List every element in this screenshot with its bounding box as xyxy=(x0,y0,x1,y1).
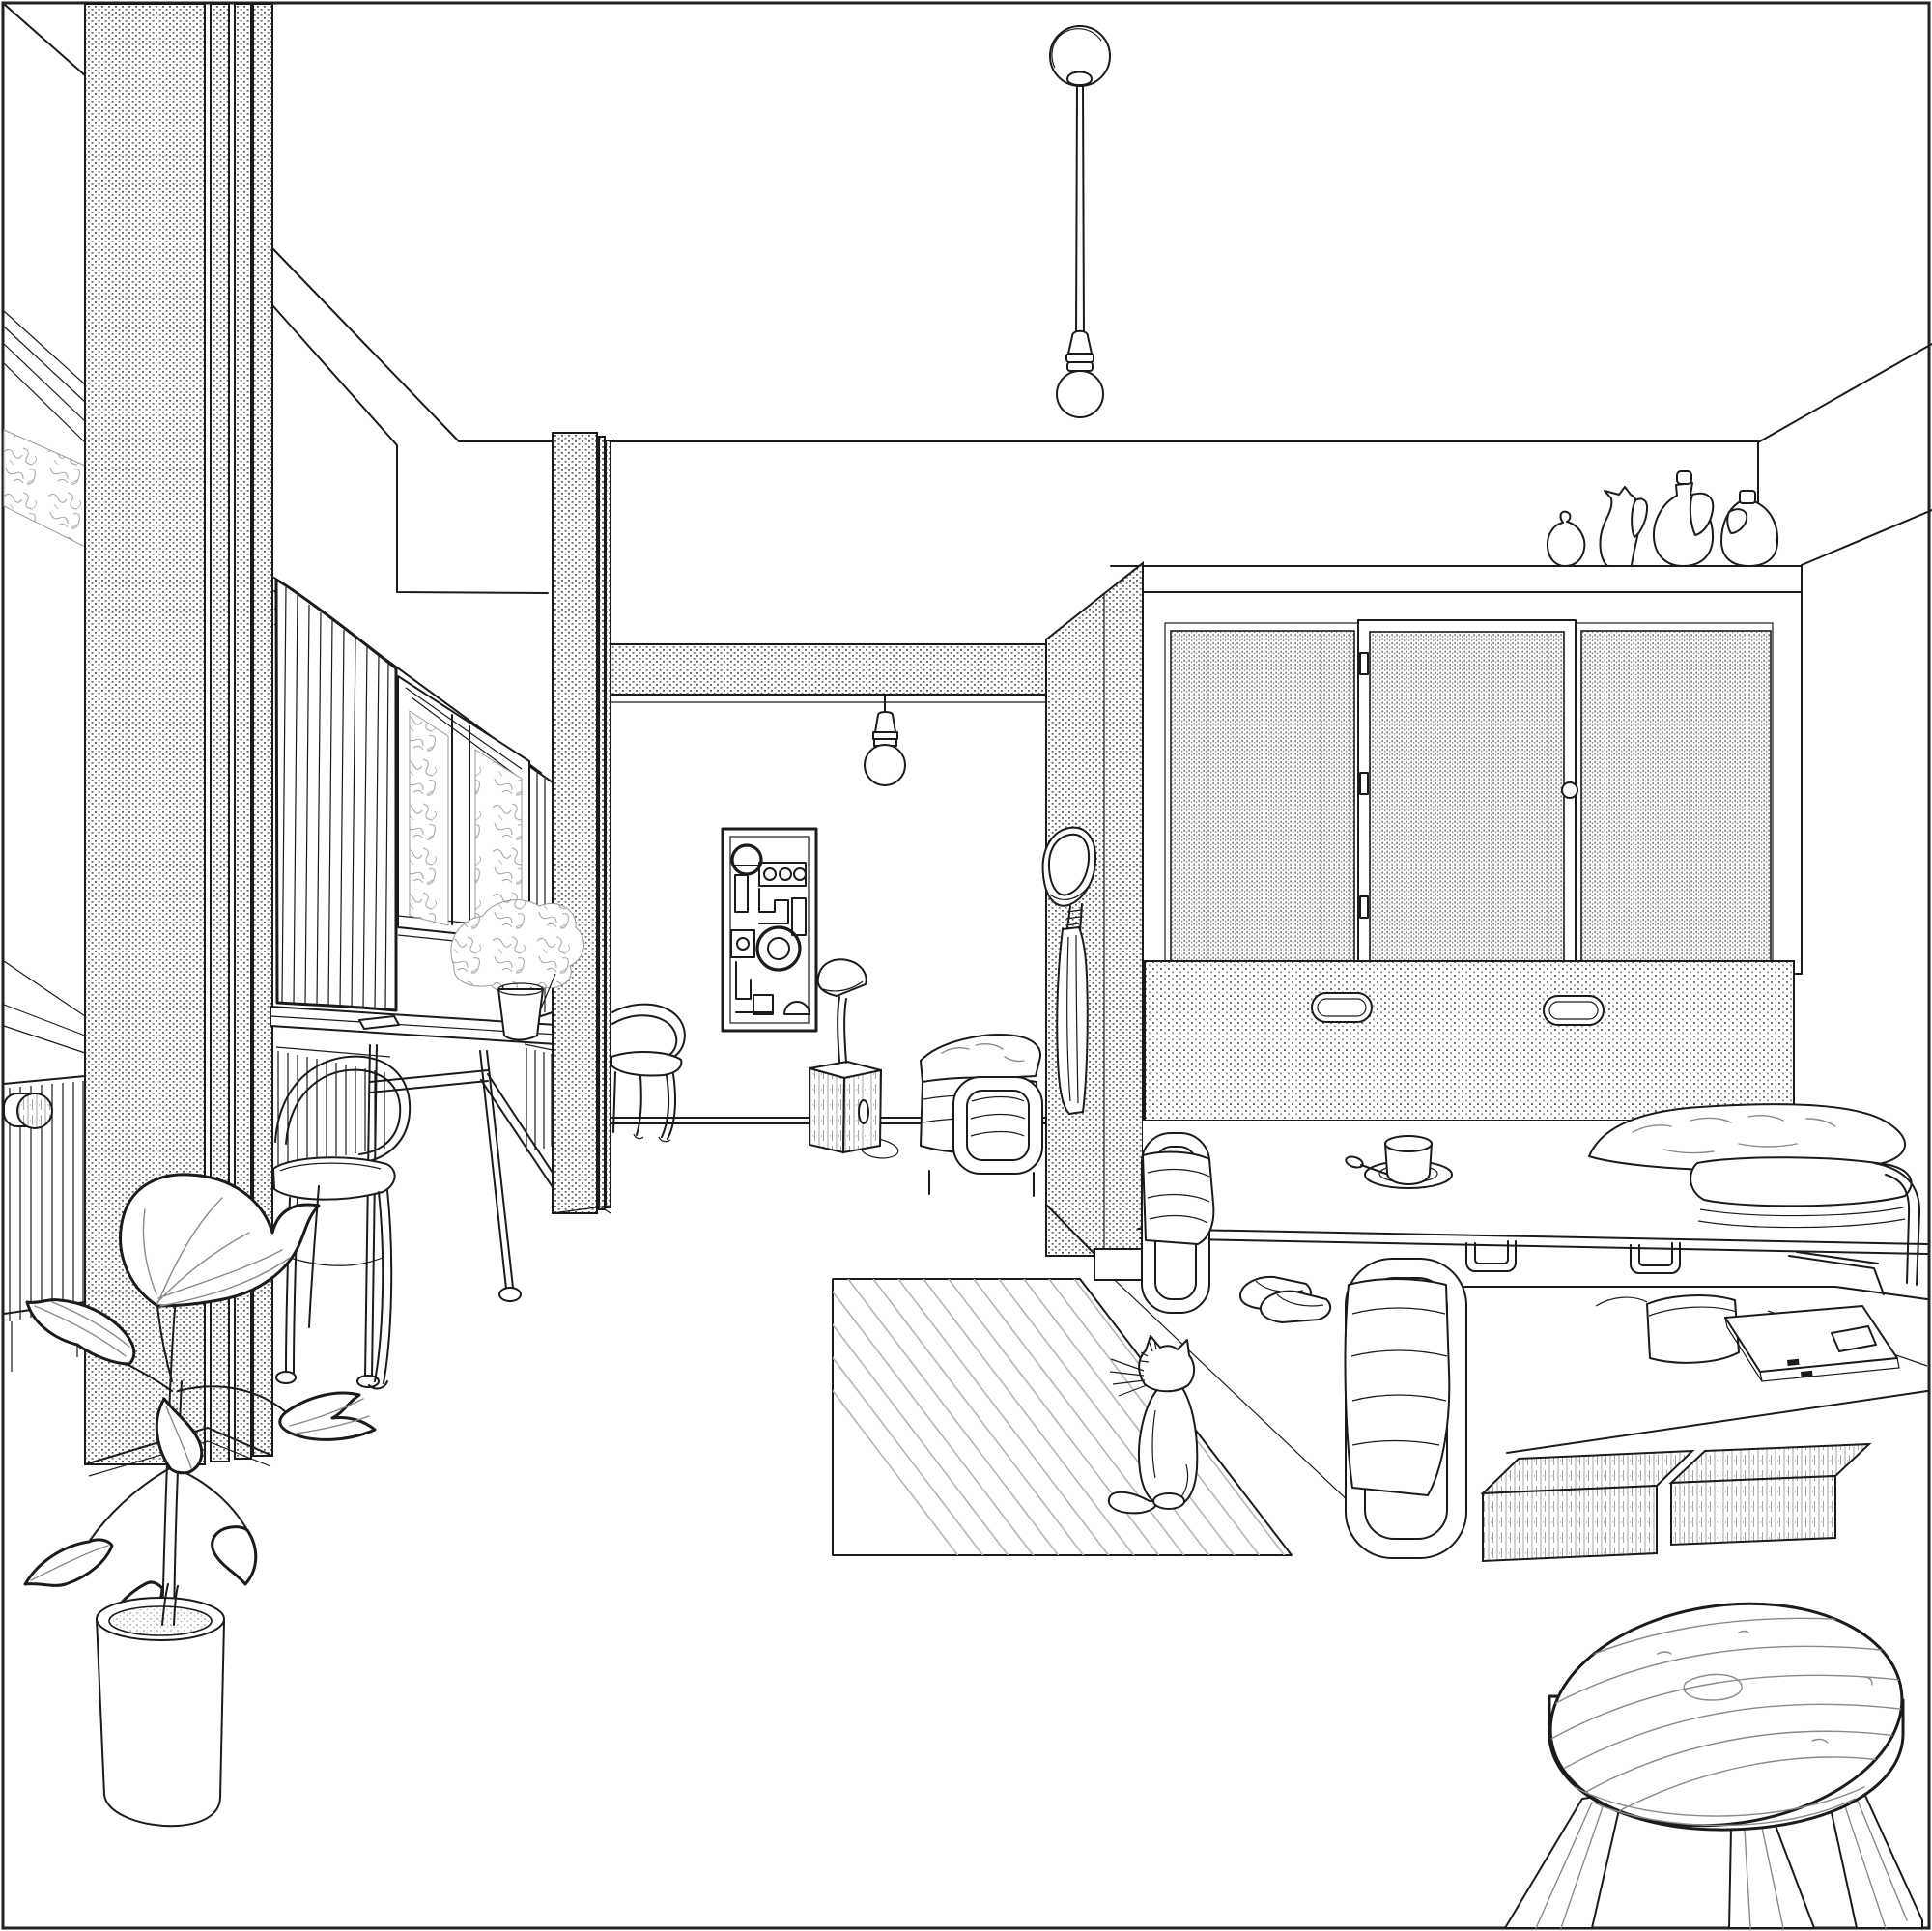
crate-handle-hole xyxy=(859,1100,868,1123)
illustration-canvas xyxy=(0,0,1932,1931)
daybed-frame-inner xyxy=(967,1091,1029,1160)
beam xyxy=(611,644,1046,702)
headrest-blanket xyxy=(1143,1152,1213,1244)
pendant-bulb xyxy=(1057,371,1103,417)
crate-front xyxy=(810,1068,844,1152)
radiator-valve-knob xyxy=(17,1093,52,1128)
panel-handle-left xyxy=(1312,993,1372,1022)
artwork xyxy=(723,829,816,1031)
bed-headrest xyxy=(1142,1133,1213,1313)
hinge-top xyxy=(1360,653,1368,674)
interior-line-drawing xyxy=(0,0,1932,1931)
hinge-bottom xyxy=(1360,896,1368,918)
partition-wall xyxy=(1046,563,1143,1280)
jug-cork xyxy=(1740,491,1755,503)
box1-front xyxy=(1483,1486,1657,1561)
door-knob xyxy=(1562,782,1577,798)
cat-paw xyxy=(1153,1493,1184,1509)
panel-handle-right xyxy=(1544,996,1604,1025)
chair-seat xyxy=(611,1052,681,1076)
amphora-stopper xyxy=(1677,471,1691,484)
partition-plinth xyxy=(1094,1249,1143,1280)
bulb-socket xyxy=(875,712,895,732)
fold-down-bed-panel xyxy=(1145,961,1794,1121)
sliding-door-left xyxy=(1171,631,1354,974)
coat xyxy=(1057,927,1088,1114)
bulb xyxy=(865,745,905,785)
hinge-middle xyxy=(1360,773,1368,794)
window-pane-left xyxy=(410,711,448,925)
plant-pot xyxy=(97,1584,224,1826)
pillar-middle xyxy=(553,433,611,1213)
box2-front xyxy=(1671,1476,1835,1545)
ceiling-rose-cup xyxy=(1067,72,1092,86)
vase xyxy=(498,989,543,1040)
pendant-socket xyxy=(1068,331,1092,354)
sliding-door-right xyxy=(1581,631,1771,974)
sliding-door-middle xyxy=(1370,632,1564,974)
